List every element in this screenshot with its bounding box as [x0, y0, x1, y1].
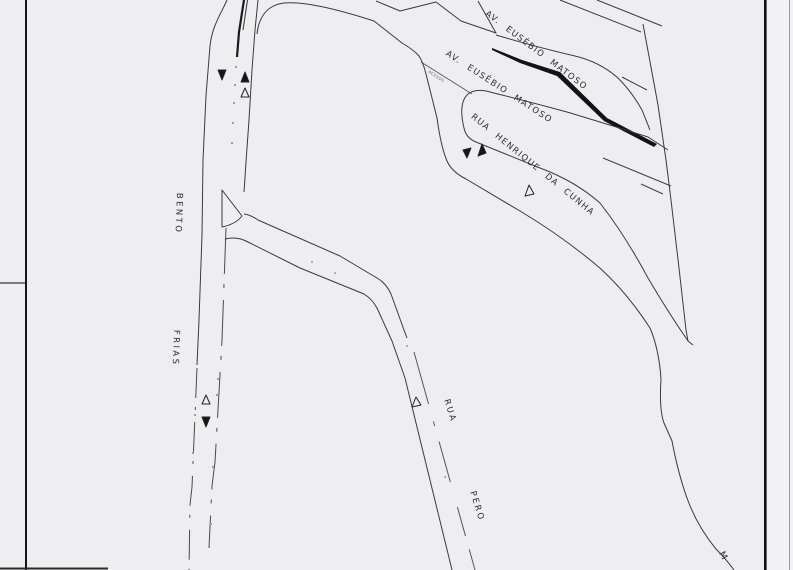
- arrow-pero-outline-icon: [412, 397, 421, 407]
- arrow-up-icon: [241, 72, 249, 82]
- arrow-down-icon: [218, 70, 226, 80]
- arrow-up-outline-icon: [241, 88, 249, 97]
- arrow-outline-lower-icon: [202, 395, 210, 404]
- top-right-lane-line-2: [597, 0, 662, 26]
- bento-frias-right-edge-lower: [209, 228, 226, 548]
- label-frias: FRIAS: [170, 330, 181, 367]
- arrow-cunha-outline-icon: [525, 185, 534, 196]
- henrique-cunha-upper-edge: [462, 90, 668, 150]
- henrique-cunha-lower-edge: [464, 128, 688, 341]
- map-linework: [0, 0, 793, 570]
- road-rua-pero: [225, 214, 475, 570]
- bento-frias-right-edge-top: [244, 0, 258, 192]
- north-edge-zigzag: [376, 1, 436, 11]
- pero-dots: [311, 261, 446, 478]
- label-bento: BENTO: [173, 193, 184, 235]
- arrow-cunha-left-icon: [463, 148, 471, 158]
- pero-lower-edge: [225, 238, 452, 570]
- street-map-drawing: AV. EUSÉBIO MATOSO AV. EUSÉBIO MATOSO RU…: [0, 0, 793, 570]
- sheet-border-left: [0, 0, 108, 570]
- bento-frias-center-dots: [192, 66, 237, 525]
- bento-frias-left-edge-broken: [189, 368, 197, 570]
- top-right-lane-line-1: [560, 0, 641, 32]
- road-bento-frias: [189, 0, 258, 570]
- channelization-island: [222, 190, 242, 227]
- bento-frias-left-edge: [197, 0, 227, 365]
- sheet-border-right: [764, 0, 793, 570]
- arrow-down-lower-icon: [202, 417, 210, 427]
